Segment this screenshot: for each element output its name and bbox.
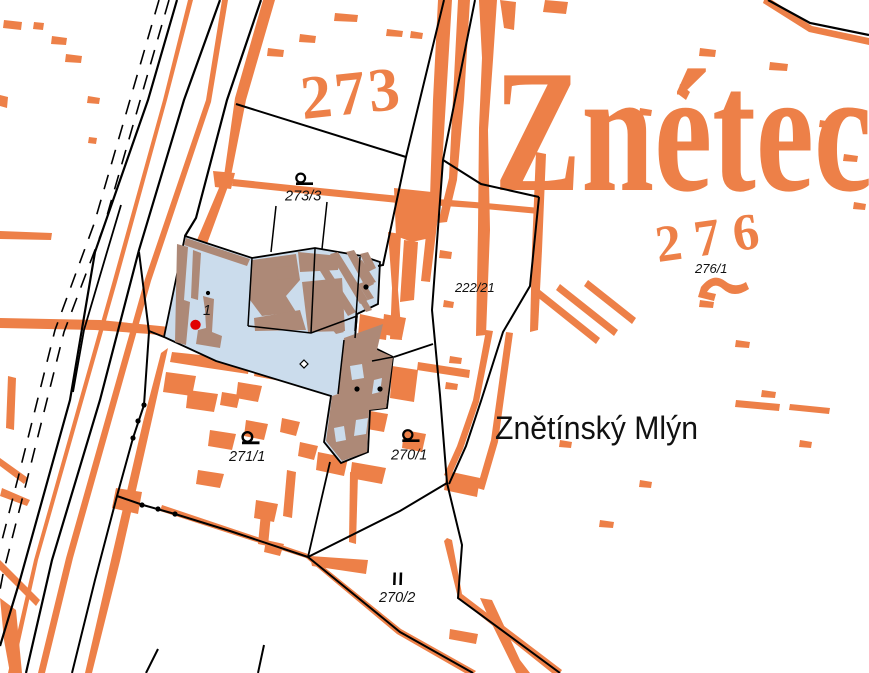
svg-text:222/21: 222/21 xyxy=(454,280,495,295)
svg-text:273/3: 273/3 xyxy=(284,189,321,205)
svg-text:271/1: 271/1 xyxy=(228,449,265,465)
svg-text:273: 273 xyxy=(297,55,406,133)
svg-text:1: 1 xyxy=(203,303,211,319)
svg-text:Znětínský Mlýn: Znětínský Mlýn xyxy=(495,410,698,446)
svg-text:Znétec: Znétec xyxy=(494,34,869,228)
svg-text:270/1: 270/1 xyxy=(390,448,427,464)
svg-text:270/2: 270/2 xyxy=(378,590,415,606)
svg-text:276/1: 276/1 xyxy=(694,261,728,276)
